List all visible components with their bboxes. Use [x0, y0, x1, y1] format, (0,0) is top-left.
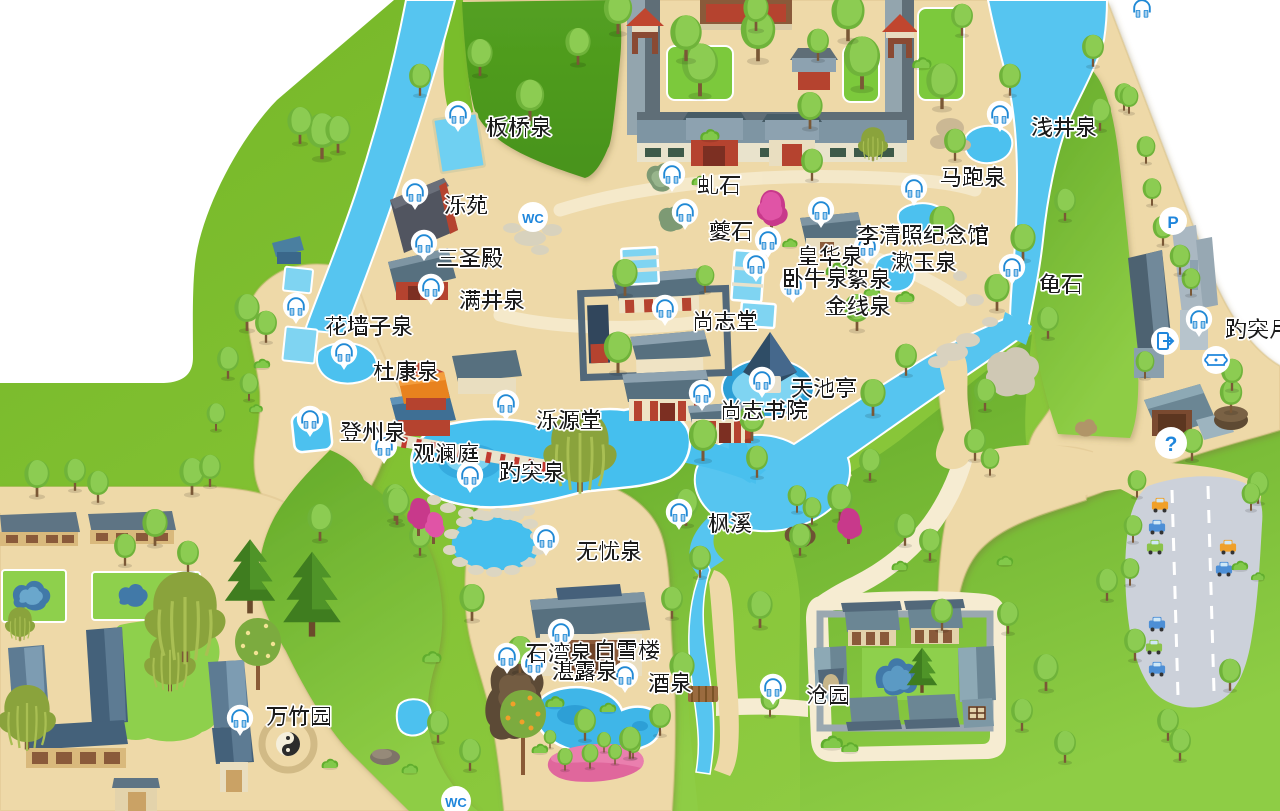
svg-text:P: P [1167, 213, 1178, 232]
svg-text:WC: WC [522, 211, 544, 226]
svg-text:?: ? [1165, 433, 1178, 456]
svg-text:WC: WC [445, 795, 467, 810]
